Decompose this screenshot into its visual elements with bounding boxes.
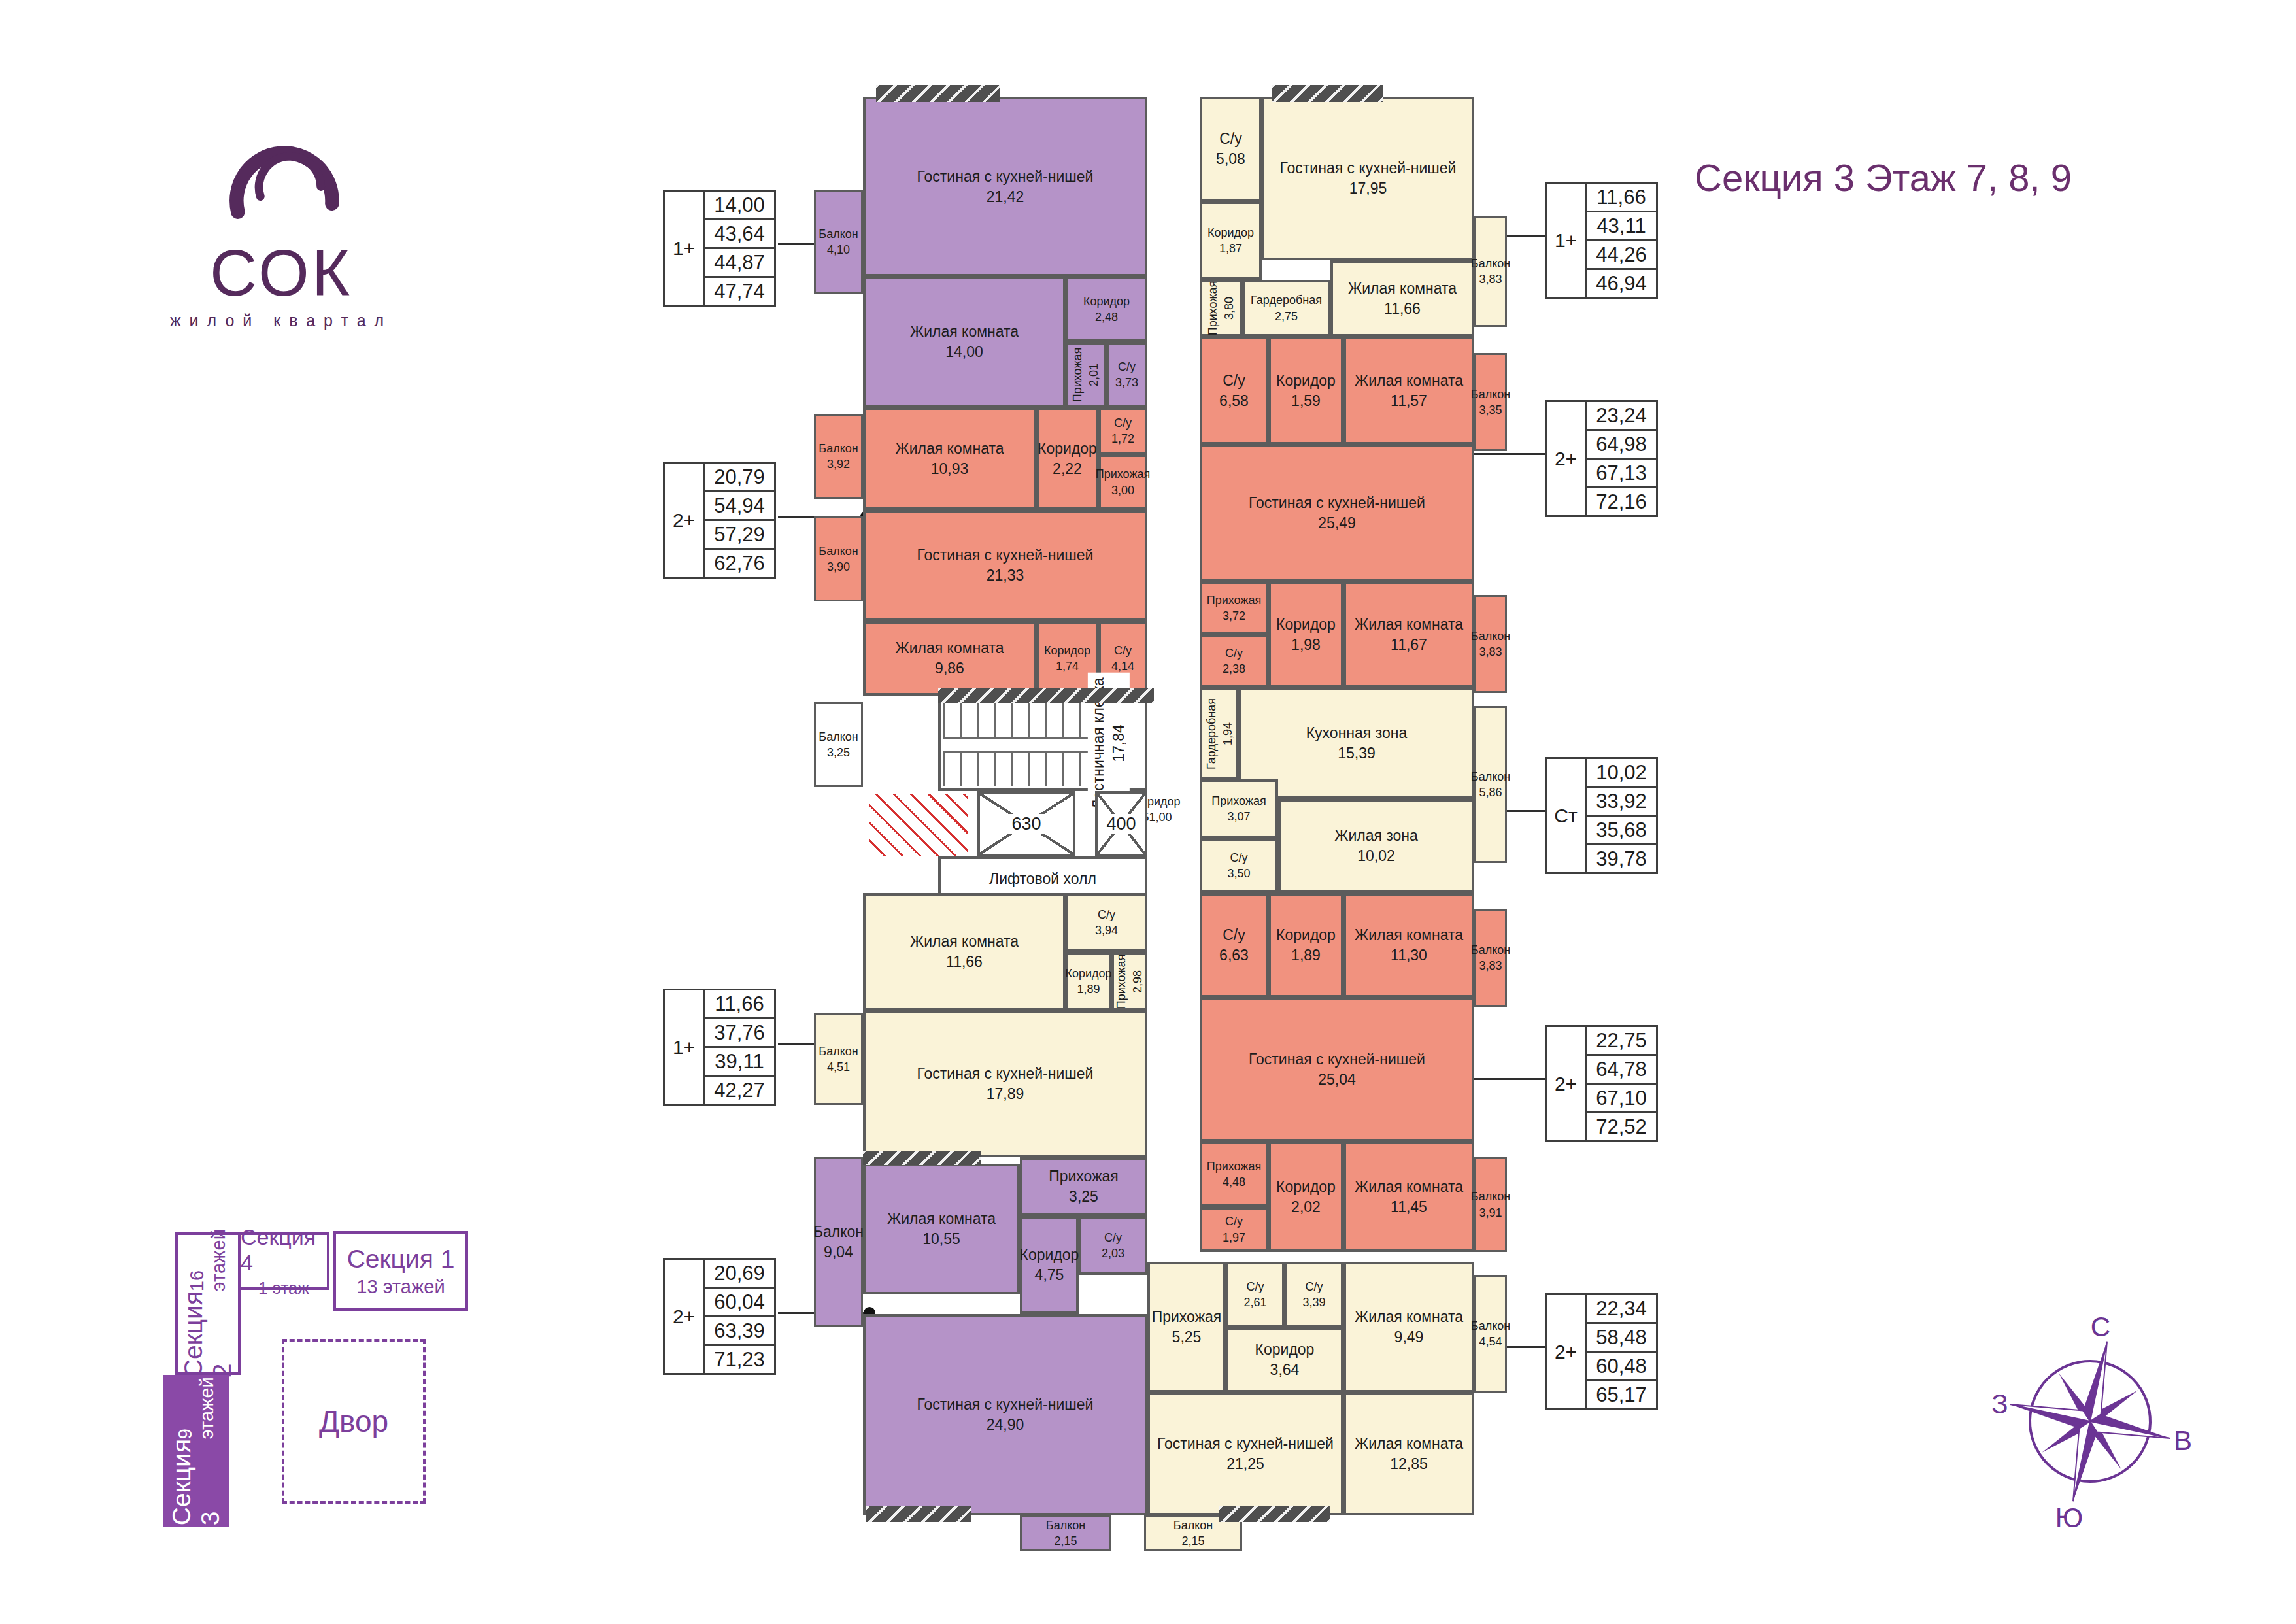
room-area: 10,93 [895,460,1004,479]
room-name: Балкон [819,730,858,745]
room-label: Коридор1,74 [1044,643,1090,674]
apartment-type-label: 1+ [665,990,705,1104]
area-value: 35,68 [1587,817,1656,845]
room-label: Гостиная с кухней-нишей25,04 [1249,1050,1425,1089]
room-area: 9,04 [813,1243,864,1262]
room-area: 4,14 [1111,659,1134,674]
room-area: 11,57 [1355,392,1463,411]
room-label: Коридор3,64 [1255,1340,1315,1379]
area-value: 43,11 [1587,212,1656,241]
room-area: 3,35 [1471,403,1510,418]
area-value: 47,74 [705,278,774,305]
room-name: Прихожая [1207,1159,1261,1174]
room-area: 2,38 [1223,662,1245,677]
room-name: Гардеробная [1251,293,1322,308]
room-name: Жилая комната [1355,1308,1463,1327]
room-name: С/у [1243,1279,1266,1294]
plan-room: С/у3,94 [1066,893,1147,952]
area-value: 39,78 [1587,845,1656,872]
room-name: С/у [1302,1279,1325,1294]
room-label: Прихожая3,25 [1049,1167,1119,1206]
plan-room: Прихожая3,72 [1200,582,1268,634]
plan-room: Прихожая2,01 [1066,342,1106,407]
room-label: Жилая комната12,85 [1355,1434,1463,1474]
room-area: 6,58 [1219,392,1249,411]
room-name: Балкон [819,544,858,559]
plan-room: Балкон4,51 [814,1013,863,1105]
room-name: Гостиная с кухней-нишей [917,1395,1094,1414]
room-name: Балкон [1471,943,1510,958]
room-area: 4,48 [1207,1175,1261,1190]
room-name: Балкон [1471,387,1510,402]
room-area: 2,02 [1276,1198,1336,1217]
plan-room: Прихожая3,25 [1020,1157,1147,1216]
room-name: С/у [1115,360,1138,375]
room-label: Жилая комната10,55 [887,1210,996,1249]
keyplan-section-3-label: Секция 3 [167,1439,225,1525]
room-label: С/у6,58 [1219,371,1249,411]
room-area: 2,48 [1083,310,1130,325]
room-label: Прихожая2,98 [1114,954,1145,1008]
room-label: Прихожая3,00 [1096,467,1150,498]
plan-room: Балкон3,92 [814,414,863,499]
plan-room: Гардеробная2,75 [1242,280,1330,337]
room-name: Прихожая [1206,281,1221,335]
room-area: 11,67 [1355,635,1463,654]
room-area: 2,75 [1251,309,1322,324]
apartment-area-table: Ст10,0233,9235,6839,78 [1545,757,1658,874]
plan-room: Прихожая3,80 [1200,280,1242,337]
apartment-type-label: 2+ [1547,402,1587,515]
keyplan-section-2-floors: 16 этажей [186,1229,229,1291]
demolition-hatch [869,794,968,856]
elevator-shaft: 400 [1095,791,1147,856]
room-label: С/у6,63 [1219,926,1249,965]
room-name: Кухонная зона [1306,724,1408,743]
room-name: С/у [1219,926,1249,945]
room-area: 3,83 [1471,645,1510,660]
room-label: Балкон3,35 [1471,387,1510,418]
room-name: Прихожая [1071,347,1086,401]
plan-room: Балкон3,83 [1474,595,1507,693]
plan-room: Гостиная с кухней-нишей21,42 [863,97,1147,277]
keyplan-section-4-label: Секция 4 [241,1225,327,1276]
apartment-area-values: 20,6960,0463,3971,23 [705,1260,774,1373]
room-name: Жилая комната [910,322,1019,341]
room-label: Прихожая3,80 [1206,281,1236,335]
plan-room: Гостиная с кухней-нишей25,04 [1200,998,1474,1142]
room-label: Коридор1,89 [1065,966,1111,997]
room-label: Жилая комната9,86 [895,639,1004,678]
plan-room: С/у6,63 [1200,893,1268,998]
plan-room: Балкон4,10 [814,190,863,294]
room-name: Коридор [1065,966,1111,981]
room-area: 5,25 [1152,1328,1222,1347]
area-value: 58,48 [1587,1324,1656,1353]
page-title: Секция 3 Этаж 7, 8, 9 [1695,156,2072,199]
room-area: 1,89 [1065,982,1111,997]
room-area: 10,55 [887,1230,996,1249]
area-value: 44,87 [705,249,774,278]
area-value: 64,78 [1587,1056,1656,1085]
room-label: Балкон9,04 [813,1223,864,1262]
room-area: 3,73 [1115,375,1138,390]
logo-crescent-icon [211,98,352,239]
plan-room: Жилая комната9,86 [863,621,1036,696]
plan-room: Жилая комната11,66 [1330,260,1474,337]
area-value: 11,66 [705,990,774,1019]
room-name: Жилая комната [1355,1434,1463,1453]
keyplan-section-1: Секция 1 13 этажей [333,1231,468,1311]
room-name: С/у [1216,129,1245,148]
floor-plan-page: { "header":{"logo_title":"СОК","logo_sub… [0,0,2296,1624]
logo-subtitle: жилой квартал [170,311,392,330]
plan-room: Жилая комната11,30 [1343,893,1474,998]
logo-title: СОК [210,239,352,307]
room-name: Гостиная с кухней-нишей [917,1064,1094,1083]
room-label: Гостиная с кухней-нишей25,49 [1249,494,1425,533]
area-value: 43,64 [705,220,774,249]
room-area: 3,64 [1255,1361,1315,1379]
plan-room: Коридор1,98 [1268,582,1343,688]
plan-room: Жилая комната11,66 [863,893,1066,1011]
floor-plan: Гостиная с кухней-нишей21,42Жилая комнат… [814,92,1500,1556]
room-label: С/у3,50 [1227,851,1250,881]
plan-room: Жилая комната10,55 [863,1164,1020,1294]
room-label: Гостиная с кухней-нишей17,95 [1280,159,1457,198]
room-name: С/у [1111,643,1134,658]
room-name: Балкон [819,227,858,242]
room-label: Балкон2,15 [1173,1518,1213,1549]
room-area: 3,39 [1302,1295,1325,1310]
keyplan-yard: Двор [282,1339,426,1504]
room-area: 3,50 [1227,866,1250,881]
apartment-area-table: 1+11,6637,7639,1142,27 [663,989,776,1106]
plan-room: С/у3,39 [1285,1262,1343,1327]
area-value: 62,76 [705,550,774,577]
room-name: Гостиная с кухней-нишей [1249,1050,1425,1069]
keyplan-section-3-highlighted: Секция 3 9 этажей [163,1375,229,1527]
room-name: Балкон [1471,256,1510,271]
room-area: 2,98 [1130,954,1145,1008]
plan-room: Жилая комната11,45 [1343,1142,1474,1252]
room-name: С/у [1223,646,1245,661]
room-label: С/у3,39 [1302,1279,1325,1310]
wall-hatch [938,688,1154,703]
wall-hatch [876,85,1000,102]
room-area: 1,94 [1220,698,1235,770]
room-area: 9,86 [895,659,1004,678]
area-value: 46,94 [1587,270,1656,297]
plan-room: Коридор4,75 [1020,1216,1079,1314]
room-name: С/у [1095,907,1118,922]
room-name: Балкон [1471,1189,1510,1204]
room-area: 2,03 [1102,1246,1124,1261]
room-name: Гостиная с кухней-нишей [917,546,1094,565]
room-label: С/у1,72 [1111,416,1134,447]
room-label: Гостиная с кухней-нишей21,42 [917,167,1094,207]
room-label: Балкон3,83 [1471,256,1510,287]
room-label: С/у5,08 [1216,129,1245,169]
room-area: 11,66 [910,953,1019,972]
room-area: 21,33 [917,566,1094,585]
room-label: Коридор1,59 [1276,371,1336,411]
room-name: Коридор [1276,615,1336,634]
room-label: Гостиная с кухней-нишей24,90 [917,1395,1094,1434]
room-label: Коридор2,02 [1276,1177,1336,1217]
wall-hatch [866,1506,971,1522]
room-label: Гардеробная2,75 [1251,293,1322,324]
keyplan-section-1-floors: 13 этажей [356,1276,445,1298]
compass-rose-icon: С В Ю З [1982,1310,2198,1532]
room-label: Балкон3,83 [1471,943,1510,973]
area-value: 33,92 [1587,788,1656,817]
room-name: Жилая комната [895,639,1004,658]
plan-room: Балкон2,15 [1020,1515,1111,1551]
room-name: Жилая комната [887,1210,996,1228]
plan-room: Прихожая2,98 [1111,952,1147,1011]
room-name: Жилая комната [1355,926,1463,945]
area-value: 72,52 [1587,1113,1656,1140]
room-label: Прихожая4,48 [1207,1159,1261,1190]
room-name: Балкон [1173,1518,1213,1533]
room-area: 2,15 [1046,1534,1085,1549]
room-area: 3,83 [1471,958,1510,973]
room-label: Жилая комната10,93 [895,439,1004,479]
apartment-area-values: 10,0233,9235,6839,78 [1587,759,1656,872]
area-value: 67,10 [1587,1085,1656,1113]
room-label: Коридор1,98 [1276,615,1336,654]
room-area: 1,87 [1207,241,1254,256]
room-name: Балкон [1471,1319,1510,1334]
apartment-type-label: 2+ [1547,1027,1587,1140]
room-label: Коридор1,87 [1207,226,1254,256]
room-label: Гостиная с кухней-нишей17,89 [917,1064,1094,1104]
room-label: Кухонная зона15,39 [1306,724,1408,763]
room-name: Балкон [819,441,858,456]
room-name: Жилая комната [1355,1177,1463,1196]
room-name: Коридор [1276,371,1336,390]
room-label: Гостиная с кухней-нишей21,25 [1157,1434,1334,1474]
plan-room: С/у2,61 [1226,1262,1285,1327]
plan-room: С/у6,58 [1200,337,1268,445]
room-area: 11,45 [1355,1198,1463,1217]
area-value: 57,29 [705,521,774,550]
room-label: Жилая комната11,30 [1355,926,1463,965]
room-area: 3,25 [819,745,858,760]
room-area: 12,85 [1355,1455,1463,1474]
room-name: Жилая комната [1348,279,1457,298]
room-label: С/у3,94 [1095,907,1118,938]
room-label: Прихожая5,25 [1152,1308,1222,1347]
room-name: Прихожая [1049,1167,1119,1186]
room-area: 21,42 [917,188,1094,207]
room-name: С/у [1111,416,1134,431]
plan-room: Балкон3,35 [1474,353,1507,451]
room-label: Жилая комната11,66 [1348,279,1457,318]
compass-west-label: З [1991,1389,2008,1419]
apartment-area-table: 2+22,3458,4860,4865,17 [1545,1293,1658,1410]
keyplan-section-2-label: Секция 2 [179,1291,237,1378]
room-label: Балкон3,91 [1471,1189,1510,1220]
room-area: 15,39 [1306,744,1408,763]
room-area: 4,51 [819,1060,858,1075]
plan-room: С/у1,97 [1200,1207,1268,1252]
compass-east-label: В [2174,1425,2192,1456]
room-label: Балкон5,86 [1471,770,1510,800]
plan-room: Коридор2,22 [1036,407,1098,510]
room-label: С/у2,38 [1223,646,1245,677]
area-value: 54,94 [705,492,774,521]
keyplan-section-2: Секция 2 16 этажей [175,1232,241,1375]
room-label: Прихожая3,72 [1207,593,1261,624]
apartment-area-values: 11,6643,1144,2646,94 [1587,184,1656,297]
plan-room: С/у3,50 [1200,838,1278,893]
room-name: С/у [1227,851,1250,866]
room-name: Коридор [1276,1177,1336,1196]
plan-room: Жилая комната12,85 [1343,1393,1474,1515]
room-label: Коридор2,48 [1083,294,1130,325]
apartment-type-label: 1+ [665,192,705,305]
room-name: Прихожая [1096,467,1150,482]
room-label: Жилая комната11,67 [1355,615,1463,654]
brand-logo: СОК жилой квартал [193,98,369,330]
room-label: Балкон4,54 [1471,1319,1510,1349]
room-area: 17,95 [1280,179,1457,198]
plan-room: Жилая комната11,67 [1343,582,1474,688]
room-name: Балкон [813,1223,864,1242]
room-name: Балкон [1046,1518,1085,1533]
apartment-area-values: 11,6637,7639,1142,27 [705,990,774,1104]
apartment-area-values: 22,7564,7867,1072,52 [1587,1027,1656,1140]
room-label: Жилая комната14,00 [910,322,1019,362]
apartment-area-values: 14,0043,6444,8747,74 [705,192,774,305]
room-label: Балкон3,92 [819,441,858,472]
plan-room: Лестничная клетка17,84 [938,696,1147,791]
room-name: Прихожая [1211,794,1266,809]
room-label: Коридор2,22 [1038,439,1097,479]
area-value: 71,23 [705,1346,774,1373]
plan-room: С/у2,03 [1079,1216,1147,1275]
plan-room: Жилая зона10,02 [1278,799,1474,893]
room-area: 14,00 [910,343,1019,362]
room-label: С/у1,97 [1223,1214,1245,1245]
room-label: Жилая комната11,57 [1355,371,1463,411]
room-name: Балкон [1471,770,1510,785]
room-name: Коридор [1207,226,1254,241]
apartment-type-label: 1+ [1547,184,1587,297]
room-label: Балкон2,15 [1046,1518,1085,1549]
area-value: 44,26 [1587,241,1656,270]
room-area: 3,91 [1471,1206,1510,1221]
area-value: 60,04 [705,1289,774,1317]
room-area: 2,01 [1087,347,1102,401]
room-label: Жилая зона10,02 [1334,826,1418,866]
room-label: Прихожая2,01 [1071,347,1102,401]
plan-room: Прихожая5,25 [1147,1262,1226,1393]
plan-room: Коридор3,64 [1226,1327,1343,1393]
room-area: 4,54 [1471,1334,1510,1349]
room-name: Балкон [1471,629,1510,644]
room-name: Жилая комната [895,439,1004,458]
room-area: 11,66 [1348,299,1457,318]
plan-room: Балкон3,25 [814,702,863,787]
room-area: 1,72 [1111,431,1134,447]
plan-room: Балкон4,54 [1474,1275,1507,1393]
room-area: 25,04 [1249,1070,1425,1089]
room-label: Коридор4,75 [1020,1245,1079,1285]
room-area: 1,89 [1276,946,1336,965]
plan-room: Гостиная с кухней-нишей21,25 [1147,1393,1343,1515]
plan-room: Жилая комната11,57 [1343,337,1474,445]
plan-room: Жилая комната10,93 [863,407,1036,510]
plan-room: С/у3,73 [1106,342,1147,407]
plan-room: Гостиная с кухней-нишей17,95 [1262,97,1474,260]
plan-room: Коридор1,89 [1066,952,1111,1011]
room-name: Жилая комната [910,932,1019,951]
room-area: 1,97 [1223,1230,1245,1245]
room-name: Жилая комната [1355,371,1463,390]
plan-room: Жилая комната9,49 [1343,1262,1474,1393]
plan-room: Балкон5,86 [1474,706,1507,863]
area-value: 37,76 [705,1019,774,1048]
plan-room: Гостиная с кухней-нишей17,89 [863,1011,1147,1157]
plan-room: С/у5,08 [1200,97,1262,201]
wall-hatch [1219,1506,1330,1522]
elevator-capacity: 630 [1006,814,1046,834]
apartment-area-table: 1+11,6643,1144,2646,94 [1545,182,1658,299]
apartment-area-values: 22,3458,4860,4865,17 [1587,1295,1656,1408]
room-label: Балкон3,25 [819,730,858,760]
wall-hatch [1272,85,1383,102]
room-area: 6,63 [1219,946,1249,965]
wall-hatch [863,1151,981,1165]
plan-room: Жилая комната14,00 [863,277,1066,407]
room-label: Балкон3,90 [819,544,858,575]
room-label: Жилая комната9,49 [1355,1308,1463,1347]
room-label: С/у2,03 [1102,1230,1124,1261]
room-label: Балкон4,51 [819,1044,858,1075]
room-area: 3,92 [819,457,858,472]
stair-treads [943,701,1090,786]
room-area: 3,94 [1095,923,1118,938]
area-value: 14,00 [705,192,774,220]
room-area: 3,72 [1207,609,1261,624]
keyplan-section-4: Секция 4 1 этаж [238,1232,329,1290]
plan-room: Гостиная с кухней-нишей25,49 [1200,445,1474,582]
room-area: 3,90 [819,560,858,575]
room-name: Прихожая [1152,1308,1222,1327]
plan-room: Коридор1,59 [1268,337,1343,445]
room-name: Лифтовой холл [989,870,1096,888]
plan-room: Прихожая4,48 [1200,1142,1268,1207]
apartment-type-label: 2+ [1547,1295,1587,1408]
apartment-area-table: 2+20,7954,9457,2962,76 [663,462,776,579]
room-label: Жилая комната11,66 [910,932,1019,972]
plan-room: Коридор1,87 [1200,201,1262,280]
keyplan-yard-label: Двор [319,1404,388,1439]
apartment-area-table: 2+22,7564,7867,1072,52 [1545,1025,1658,1142]
plan-room: Балкон3,83 [1474,216,1507,327]
keyplan-section-1-label: Секция 1 [347,1245,455,1274]
area-value: 39,11 [705,1048,774,1077]
compass-north-label: С [2091,1311,2110,1342]
plan-room: Балкон9,04 [814,1157,863,1327]
plan-room: Гостиная с кухней-нишей24,90 [863,1314,1147,1515]
room-area: 5,86 [1471,785,1510,800]
area-value: 22,75 [1587,1027,1656,1056]
room-label: Балкон4,10 [819,227,858,258]
